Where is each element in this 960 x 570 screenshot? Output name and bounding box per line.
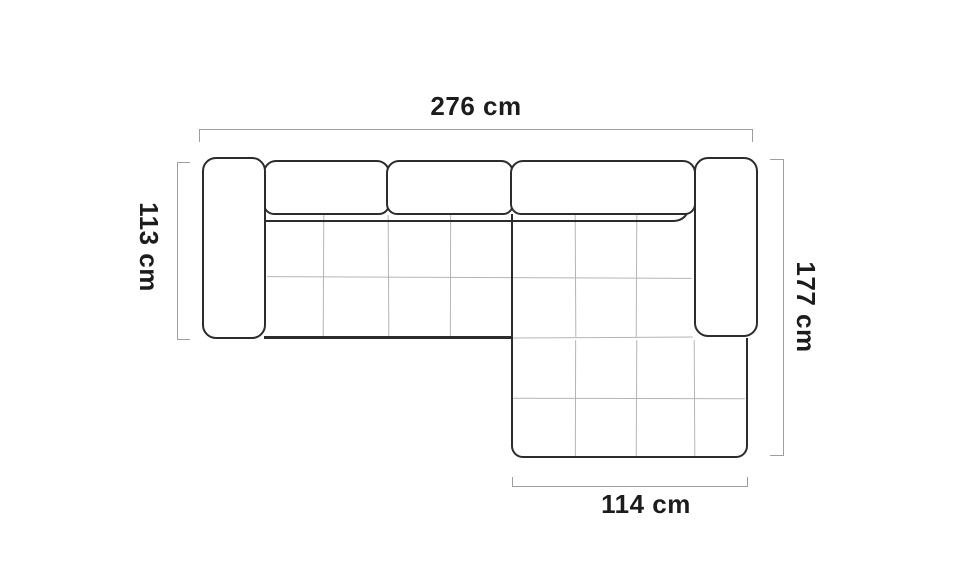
diagram-canvas: 276 cm 113 cm 177 cm 114 cm: [0, 0, 960, 570]
dimension-label-top: 276 cm: [376, 90, 576, 122]
stitch-line: [267, 276, 692, 279]
dimension-label-left: 113 cm: [133, 147, 165, 347]
chaise-section: [511, 338, 748, 458]
stitch-line: [636, 215, 638, 337]
dimension-line-top: [199, 129, 753, 142]
stitch-line: [575, 215, 577, 337]
armrest-left: [202, 157, 266, 339]
backrest-cushion-2: [386, 160, 514, 215]
dimension-label-bottom: 114 cm: [546, 488, 746, 520]
seat-cushion-seam: [511, 214, 514, 338]
dimension-line-bottom: [512, 477, 748, 487]
seat-front-edge: [264, 336, 512, 339]
backrest-cushion-1: [263, 160, 390, 215]
armrest-right: [694, 157, 758, 337]
dimension-line-right: [770, 159, 784, 456]
backrest-cushion-3: [510, 160, 696, 215]
dimension-line-left: [177, 162, 190, 340]
dimension-label-right: 177 cm: [790, 207, 822, 407]
